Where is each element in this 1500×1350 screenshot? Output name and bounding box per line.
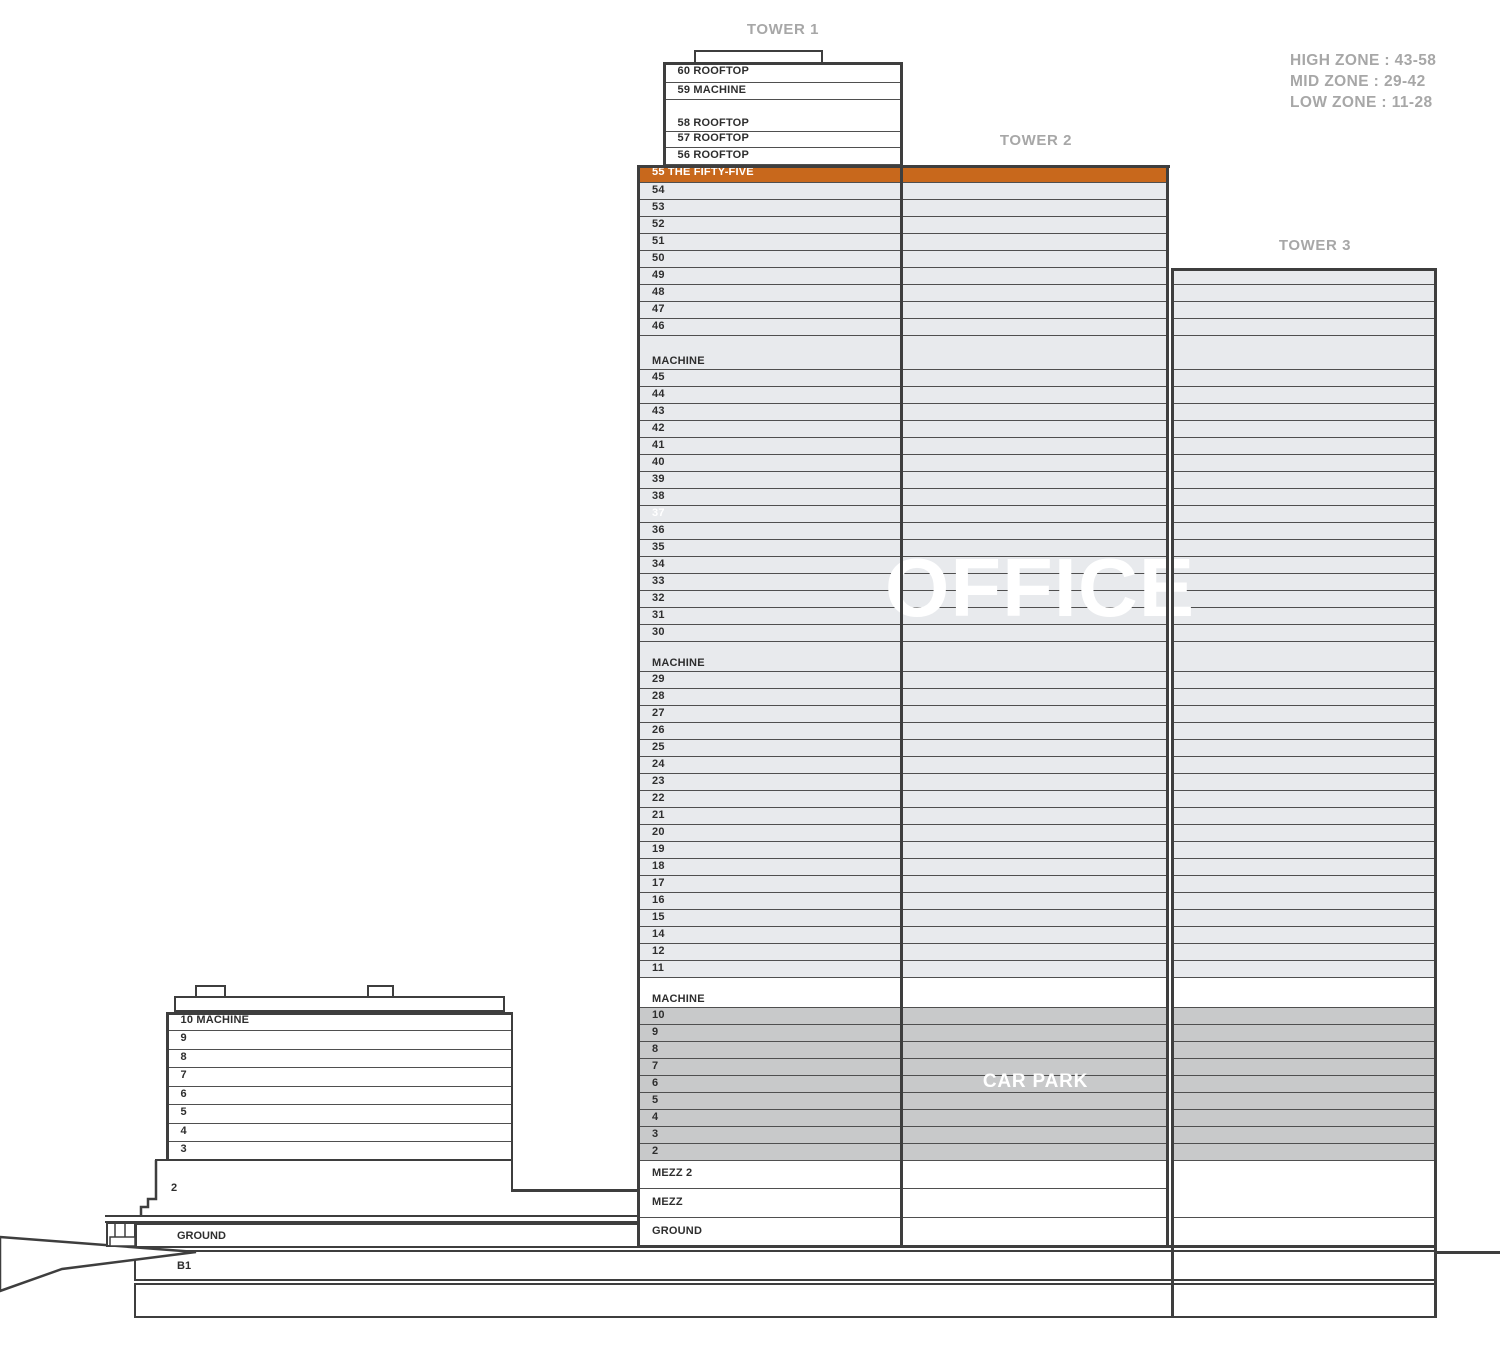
t1-band-label: 25	[640, 742, 665, 755]
t1-band-label: 41	[640, 440, 665, 453]
t2-band-36	[903, 523, 1166, 540]
podium-band-label: 6	[169, 1089, 187, 1102]
t1-band-29: 29	[640, 672, 900, 689]
t2-band-ground	[903, 1218, 1166, 1248]
t1u-band-56-rooftop: 56 ROOFTOP	[666, 148, 901, 165]
t1-band-label: 39	[640, 474, 665, 487]
t2-band-6	[903, 1076, 1166, 1093]
t1-band-label: 46	[640, 321, 665, 334]
t1-band-label: 40	[640, 457, 665, 470]
wall-line-12	[511, 1012, 514, 1191]
wall-line-9	[637, 1245, 1437, 1248]
t2-band-22	[903, 791, 1166, 808]
t3-band-15	[1174, 910, 1434, 927]
t3-band-2	[1174, 1144, 1434, 1161]
podium-roof-cap	[174, 996, 505, 1012]
t1-band-51: 51	[640, 234, 900, 251]
t2-band-20	[903, 825, 1166, 842]
t1-band-39: 39	[640, 472, 900, 489]
t3-band-39	[1174, 472, 1434, 489]
t3-band-21	[1174, 808, 1434, 825]
t2-band-30	[903, 625, 1166, 642]
t2-band-11	[903, 961, 1166, 978]
t1-band-23: 23	[640, 774, 900, 791]
t1-band-label: 35	[640, 542, 665, 555]
wall-line-0	[663, 62, 666, 165]
t3-band-machine	[1174, 642, 1434, 672]
t1-band-label: 52	[640, 219, 665, 232]
t2-band-50	[903, 251, 1166, 268]
wall-line-1	[663, 62, 903, 65]
t1-band-label: 5	[640, 1095, 658, 1108]
t1-band-label: 31	[640, 610, 665, 623]
t3-band-ground	[1174, 1218, 1434, 1248]
t1-band-label: 10	[640, 1010, 665, 1023]
t2-band-3	[903, 1127, 1166, 1144]
t1-band-11: 11	[640, 961, 900, 978]
t1-band-label: 23	[640, 776, 665, 789]
t1-band-32: 32	[640, 591, 900, 608]
t1-band-40: 40	[640, 455, 900, 472]
t1-band-label: 38	[640, 491, 665, 504]
t1-band-label: 54	[640, 185, 665, 198]
t1-band-label: MEZZ 2	[640, 1168, 692, 1181]
t2-band-4	[903, 1110, 1166, 1127]
podium-band-4: 4	[169, 1124, 511, 1143]
t1u-band-58-rooftop: 58 ROOFTOP	[666, 100, 901, 132]
podium-vent-left	[195, 985, 226, 998]
podium-band-label: 9	[169, 1033, 187, 1046]
t2-band-46	[903, 319, 1166, 336]
t1-band-label: 42	[640, 423, 665, 436]
tower1-title: TOWER 1	[633, 21, 933, 38]
t1-band-label: 9	[640, 1027, 658, 1040]
podium-band-label: 8	[169, 1052, 187, 1065]
t2-band-28	[903, 689, 1166, 706]
t3-band-48	[1174, 285, 1434, 302]
t1-band-41: 41	[640, 438, 900, 455]
t1-band-label: 43	[640, 406, 665, 419]
t1-band-18: 18	[640, 859, 900, 876]
t3-band-27	[1174, 706, 1434, 723]
t1-band-21: 21	[640, 808, 900, 825]
t1-band-label: 8	[640, 1044, 658, 1057]
tower2-title: TOWER 2	[886, 132, 1186, 149]
t2-band-38	[903, 489, 1166, 506]
t3-band-43	[1174, 404, 1434, 421]
t1-band-label: 55 THE FIFTY-FIVE	[640, 167, 754, 180]
t1-band-label: 15	[640, 912, 665, 925]
t1-band-24: 24	[640, 757, 900, 774]
t3-band-machine	[1174, 978, 1434, 1008]
t3-band-30	[1174, 625, 1434, 642]
podium-band-8: 8	[169, 1050, 511, 1069]
t2-band-53	[903, 200, 1166, 217]
t1-band-43: 43	[640, 404, 900, 421]
t1-band-label: 47	[640, 304, 665, 317]
t1-band-31: 31	[640, 608, 900, 625]
t3-band-26	[1174, 723, 1434, 740]
podium-ground-label: GROUND	[137, 1230, 226, 1242]
podium-band-6: 6	[169, 1087, 511, 1106]
t1u-band-label: 59 MACHINE	[666, 85, 747, 98]
b1-label: B1	[136, 1260, 191, 1272]
t1-band-25: 25	[640, 740, 900, 757]
t1-band-label: 32	[640, 593, 665, 606]
t1-band-34: 34	[640, 557, 900, 574]
t2-band-19	[903, 842, 1166, 859]
t1-band-54: 54	[640, 183, 900, 200]
t2-band-5	[903, 1093, 1166, 1110]
t3-band-35	[1174, 540, 1434, 557]
podium-band-5: 5	[169, 1105, 511, 1124]
t3-band-34	[1174, 557, 1434, 574]
t1-band-9: 9	[640, 1025, 900, 1042]
podium-floor2-label: 2	[171, 1182, 177, 1194]
t2-band-35	[903, 540, 1166, 557]
podium-band-label: 3	[169, 1144, 187, 1157]
t1-band-27: 27	[640, 706, 900, 723]
t2-band-31	[903, 608, 1166, 625]
t2-band-47	[903, 302, 1166, 319]
t3-band-blank	[1174, 1161, 1434, 1218]
t2-band-44	[903, 387, 1166, 404]
t1-band-47: 47	[640, 302, 900, 319]
t3-band-8	[1174, 1042, 1434, 1059]
t3-band-23	[1174, 774, 1434, 791]
t1-band-52: 52	[640, 217, 900, 234]
t2-band-49	[903, 268, 1166, 285]
t1-band-label: MACHINE	[640, 994, 705, 1007]
t2-band-machine	[903, 978, 1166, 1008]
t2-band-25	[903, 740, 1166, 757]
t3-band-14	[1174, 927, 1434, 944]
t1-band-label: 28	[640, 691, 665, 704]
t3-band-44	[1174, 387, 1434, 404]
t1-band-4: 4	[640, 1110, 900, 1127]
t1-band-36: 36	[640, 523, 900, 540]
t1-band-label: 14	[640, 929, 665, 942]
t1-band-label: 22	[640, 793, 665, 806]
t1-band-machine: MACHINE	[640, 336, 900, 370]
t1-band-10: 10	[640, 1008, 900, 1025]
t1-band-2: 2	[640, 1144, 900, 1161]
t1-band-label: 27	[640, 708, 665, 721]
wall-line-5	[1166, 165, 1169, 1248]
t1-band-label: MACHINE	[640, 356, 705, 369]
t1-band-label: 36	[640, 525, 665, 538]
podium-band-label: 7	[169, 1070, 187, 1083]
t1-band-label: MACHINE	[640, 658, 705, 671]
t1-band-46: 46	[640, 319, 900, 336]
t3-band-5	[1174, 1093, 1434, 1110]
t1-band-label: 26	[640, 725, 665, 738]
t1-band-label: 50	[640, 253, 665, 266]
t1-band-label: 21	[640, 810, 665, 823]
t2-band-10	[903, 1008, 1166, 1025]
t1-band-37: 37	[640, 506, 900, 523]
t2-band-37	[903, 506, 1166, 523]
t3-band-41	[1174, 438, 1434, 455]
t1-band-38: 38	[640, 489, 900, 506]
t1u-band-59-machine: 59 MACHINE	[666, 83, 901, 100]
t1-band-17: 17	[640, 876, 900, 893]
wall-line-11	[166, 1012, 169, 1160]
zone-high: HIGH ZONE : 43-58	[1290, 50, 1436, 71]
t1u-band-57-rooftop: 57 ROOFTOP	[666, 132, 901, 148]
t3-band-6	[1174, 1076, 1434, 1093]
t1-band-label: 7	[640, 1061, 658, 1074]
t1-band-label: 3	[640, 1129, 658, 1142]
t3-band-25	[1174, 740, 1434, 757]
entrance-canopy	[107, 1223, 135, 1246]
wall-line-7	[1434, 268, 1437, 1318]
podium-band-label: 10 MACHINE	[169, 1015, 250, 1028]
t2-band-18	[903, 859, 1166, 876]
t2-band-39	[903, 472, 1166, 489]
t2-band-43	[903, 404, 1166, 421]
wall-line-3	[637, 165, 640, 1248]
t2-band-33	[903, 574, 1166, 591]
t1-band-16: 16	[640, 893, 900, 910]
t2-band-mezz-2	[903, 1161, 1166, 1189]
t3-band-18	[1174, 859, 1434, 876]
t3-band-7	[1174, 1059, 1434, 1076]
canopy-step	[110, 1237, 135, 1246]
wall-line-6	[1171, 268, 1174, 1318]
entrance-slab	[105, 1215, 639, 1224]
t1-band-12: 12	[640, 944, 900, 961]
zone-mid: MID ZONE : 29-42	[1290, 71, 1436, 92]
t1-band-15: 15	[640, 910, 900, 927]
t3-band-46	[1174, 319, 1434, 336]
t3-band-19	[1174, 842, 1434, 859]
t3-band-33	[1174, 574, 1434, 591]
t1-band-label: 49	[640, 270, 665, 283]
t2-band-26	[903, 723, 1166, 740]
t1-band-label: 20	[640, 827, 665, 840]
t2-band-2	[903, 1144, 1166, 1161]
t2-band-34	[903, 557, 1166, 574]
t1-band-50: 50	[640, 251, 900, 268]
wall-line-8	[1171, 268, 1437, 271]
t1-band-35: 35	[640, 540, 900, 557]
t1-band-30: 30	[640, 625, 900, 642]
t2-band-45	[903, 370, 1166, 387]
t1-band-label: 12	[640, 946, 665, 959]
t1-band-label: 11	[640, 963, 664, 976]
b1-band: B1	[134, 1250, 1437, 1281]
zone-low: LOW ZONE : 11-28	[1290, 92, 1436, 113]
t1-band-mezz-2: MEZZ 2	[640, 1161, 900, 1189]
t3-band-machine	[1174, 336, 1434, 370]
t2-band-27	[903, 706, 1166, 723]
t1-band-label: 51	[640, 236, 665, 249]
t1-band-label: 53	[640, 202, 665, 215]
t1-band-label: 24	[640, 759, 665, 772]
t1-band-33: 33	[640, 574, 900, 591]
t3-band-32	[1174, 591, 1434, 608]
t1-band-22: 22	[640, 791, 900, 808]
podium-band-label: 4	[169, 1126, 187, 1139]
t2-band-51	[903, 234, 1166, 251]
t2-band-41	[903, 438, 1166, 455]
t1-band-label: 48	[640, 287, 665, 300]
t1-band-label: GROUND	[640, 1226, 702, 1239]
t2-band-14	[903, 927, 1166, 944]
t1-band-label: MEZZ	[640, 1197, 683, 1210]
t3-band-10	[1174, 1008, 1434, 1025]
t3-band-42	[1174, 421, 1434, 438]
t3-band-45	[1174, 370, 1434, 387]
t2-band-17	[903, 876, 1166, 893]
t2-band-12	[903, 944, 1166, 961]
t1u-band-label: 60 ROOFTOP	[666, 66, 749, 79]
t1-band-20: 20	[640, 825, 900, 842]
t1-band-8: 8	[640, 1042, 900, 1059]
zone-legend: HIGH ZONE : 43-58 MID ZONE : 29-42 LOW Z…	[1290, 50, 1436, 113]
t2-band-52	[903, 217, 1166, 234]
t1-band-label: 17	[640, 878, 665, 891]
t1-band-label: 45	[640, 372, 665, 385]
t1-band-machine: MACHINE	[640, 642, 900, 672]
t1-band-6: 6	[640, 1076, 900, 1093]
tower3-title: TOWER 3	[1165, 237, 1465, 254]
t2-band-mezz	[903, 1189, 1166, 1218]
t3-band-9	[1174, 1025, 1434, 1042]
wall-line-10	[166, 1012, 513, 1015]
podium-band-7: 7	[169, 1068, 511, 1087]
t2-band-21	[903, 808, 1166, 825]
t3-band-24	[1174, 757, 1434, 774]
t2-band-54	[903, 183, 1166, 200]
t2-band-29	[903, 672, 1166, 689]
podium-band-label: 5	[169, 1107, 187, 1120]
t1-band-28: 28	[640, 689, 900, 706]
t3-band-22	[1174, 791, 1434, 808]
t1-band-44: 44	[640, 387, 900, 404]
podium-vent-right	[367, 985, 394, 998]
ground-line-right-extension	[1437, 1251, 1500, 1254]
t3-band-20	[1174, 825, 1434, 842]
t1-band-14: 14	[640, 927, 900, 944]
t1-band-45: 45	[640, 370, 900, 387]
t1-band-label: 44	[640, 389, 665, 402]
t2-band-15	[903, 910, 1166, 927]
t3-band-12	[1174, 944, 1434, 961]
t1-band-label: 37	[640, 508, 665, 521]
t1u-band-label: 57 ROOFTOP	[666, 133, 749, 146]
t2-band-8	[903, 1042, 1166, 1059]
t3-band-29	[1174, 672, 1434, 689]
wall-line-2	[900, 62, 903, 1248]
t3-band-36	[1174, 523, 1434, 540]
t3-band-4	[1174, 1110, 1434, 1127]
t2-band-48	[903, 285, 1166, 302]
t1u-band-label: 56 ROOFTOP	[666, 150, 749, 163]
t1-band-3: 3	[640, 1127, 900, 1144]
t1u-band-label: 58 ROOFTOP	[666, 118, 749, 131]
wall-line-13	[155, 1159, 513, 1162]
t2-band-23	[903, 774, 1166, 791]
t1-band-5: 5	[640, 1093, 900, 1110]
t3-band-31	[1174, 608, 1434, 625]
t3-band-40	[1174, 455, 1434, 472]
t1-band-label: 19	[640, 844, 665, 857]
t1-band-label: 30	[640, 627, 665, 640]
t3-band-47	[1174, 302, 1434, 319]
t2-band-40	[903, 455, 1166, 472]
t1-band-48: 48	[640, 285, 900, 302]
t1-band-label: 2	[640, 1146, 658, 1159]
t1-band-label: 34	[640, 559, 665, 572]
t3-band-38	[1174, 489, 1434, 506]
t1-band-7: 7	[640, 1059, 900, 1076]
t2-band-32	[903, 591, 1166, 608]
t2-band-42	[903, 421, 1166, 438]
t1-band-label: 16	[640, 895, 665, 908]
t2-band-machine	[903, 642, 1166, 672]
t1-band-label: 18	[640, 861, 665, 874]
building-section-diagram: TOWER 1 TOWER 2 TOWER 3 HIGH ZONE : 43-5…	[0, 0, 1500, 1350]
podium-ground-band: GROUND	[135, 1223, 639, 1248]
t2-band-machine	[903, 336, 1166, 370]
t3-band-28	[1174, 689, 1434, 706]
t3-band-11	[1174, 961, 1434, 978]
t2-band-24	[903, 757, 1166, 774]
t1-band-label: 4	[640, 1112, 658, 1125]
t1-band-19: 19	[640, 842, 900, 859]
t2-band-16	[903, 893, 1166, 910]
wall-line-4	[637, 165, 1170, 168]
t1-band-42: 42	[640, 421, 900, 438]
wall-line-14	[511, 1189, 640, 1192]
t2-band-9	[903, 1025, 1166, 1042]
t3-band-16	[1174, 893, 1434, 910]
t2-band-7	[903, 1059, 1166, 1076]
t1-band-label: 33	[640, 576, 665, 589]
podium-band-9: 9	[169, 1031, 511, 1050]
t1-band-label: 6	[640, 1078, 658, 1091]
t3-band-3	[1174, 1127, 1434, 1144]
t3-band-37	[1174, 506, 1434, 523]
podium-band-10-machine: 10 MACHINE	[169, 1013, 511, 1032]
t1u-band-60-rooftop: 60 ROOFTOP	[666, 62, 901, 83]
basement-band-2	[134, 1283, 1437, 1318]
t1-band-49: 49	[640, 268, 900, 285]
t1-band-mezz: MEZZ	[640, 1189, 900, 1218]
t1-band-53: 53	[640, 200, 900, 217]
t1-band-label: 29	[640, 674, 665, 687]
t3-band-17	[1174, 876, 1434, 893]
t1-band-ground: GROUND	[640, 1218, 900, 1248]
t1-band-machine: MACHINE	[640, 978, 900, 1008]
t1-band-26: 26	[640, 723, 900, 740]
floor2-step-edge	[141, 1160, 156, 1216]
